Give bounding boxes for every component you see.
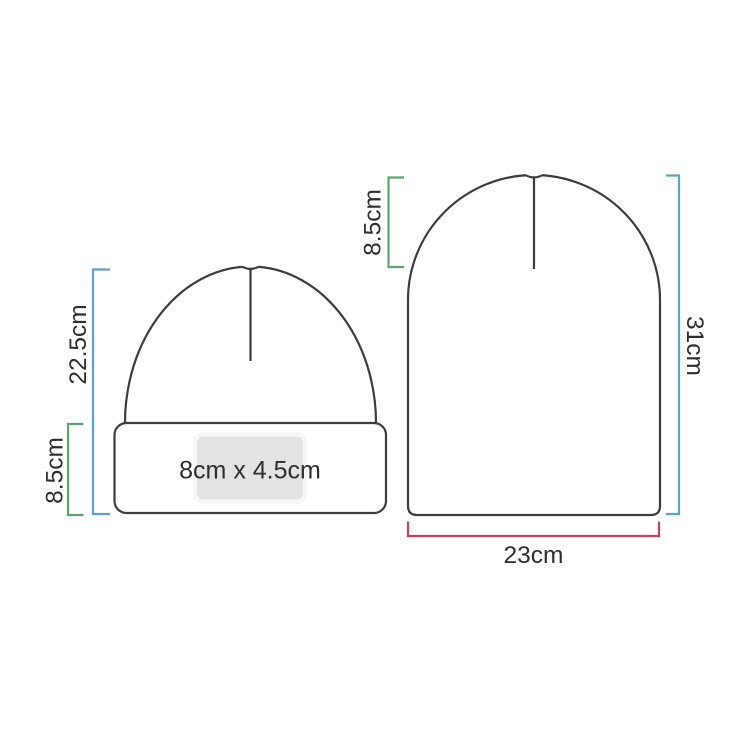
svg-text:23cm: 23cm (504, 542, 564, 569)
svg-text:8.5cm: 8.5cm (42, 437, 69, 504)
svg-text:8.5cm: 8.5cm (360, 189, 387, 256)
svg-text:31cm: 31cm (681, 316, 708, 376)
svg-text:8cm x 4.5cm: 8cm x 4.5cm (179, 457, 321, 485)
svg-text:22.5cm: 22.5cm (65, 304, 92, 384)
